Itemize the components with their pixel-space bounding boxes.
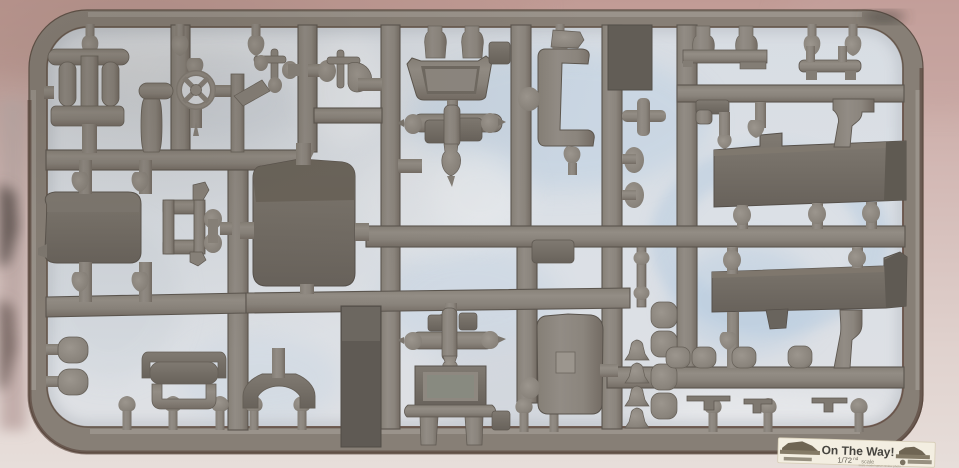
svg-text:1/72: 1/72	[837, 455, 852, 464]
svg-text:nd: nd	[853, 456, 859, 461]
svg-text:scale model sprue review photo: scale model sprue review photo	[858, 463, 901, 468]
